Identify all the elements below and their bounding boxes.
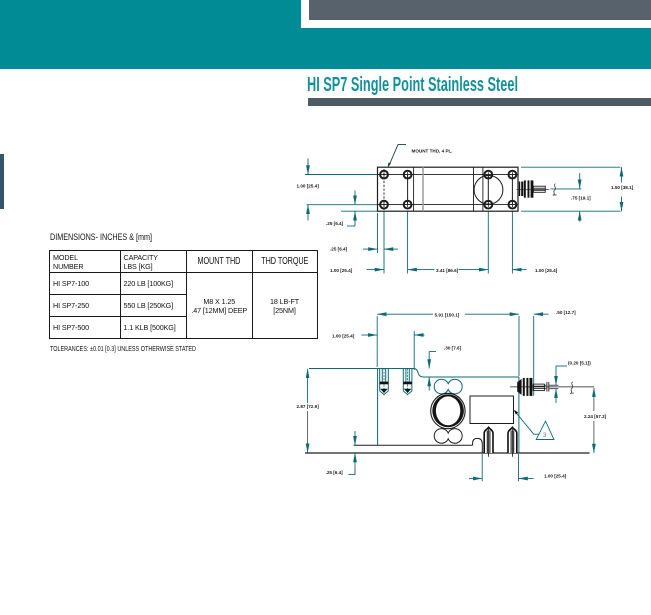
svg-text:1.00 [25.4]: 1.00 [25.4]: [535, 268, 558, 273]
svg-text:1.00 [25.4]: 1.00 [25.4]: [330, 268, 353, 273]
svg-text:.30 [7.6]: .30 [7.6]: [444, 346, 462, 351]
svg-text:2.24 [57.2]: 2.24 [57.2]: [584, 414, 607, 419]
svg-text:2.87 [72.9]: 2.87 [72.9]: [297, 404, 320, 409]
svg-text:(0.20 [5.1]): (0.20 [5.1]): [568, 360, 591, 365]
svg-text:.25 [6.4]: .25 [6.4]: [330, 246, 348, 251]
svg-text:.75 [19.1]: .75 [19.1]: [571, 195, 591, 200]
svg-text:3.41 [86.6]: 3.41 [86.6]: [436, 268, 459, 273]
svg-text:1.00 [25.4]: 1.00 [25.4]: [544, 474, 567, 479]
svg-text:.25 [6.4]: .25 [6.4]: [326, 221, 344, 226]
svg-text:3: 3: [543, 433, 547, 439]
svg-text:MOUNT THD, 4 PL.: MOUNT THD, 4 PL.: [412, 149, 453, 154]
svg-text:1.00 [25.4]: 1.00 [25.4]: [297, 183, 320, 188]
svg-text:.50 [12.7]: .50 [12.7]: [556, 310, 576, 315]
svg-text:5.91 [150.1]: 5.91 [150.1]: [435, 312, 460, 317]
svg-text:1.50 [38.1]: 1.50 [38.1]: [611, 185, 634, 190]
svg-text:.25 [6.4]: .25 [6.4]: [326, 470, 344, 475]
svg-text:1.00 [25.4]: 1.00 [25.4]: [332, 333, 355, 338]
